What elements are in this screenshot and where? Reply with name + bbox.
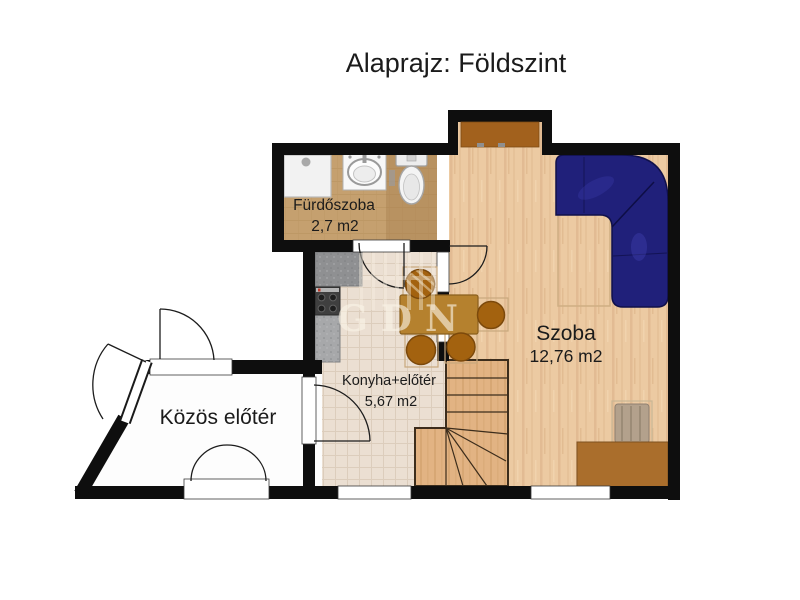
watermark-text: GDN <box>337 298 471 340</box>
living-area: 12,76 m2 <box>530 346 603 366</box>
desk <box>577 442 668 487</box>
kitchen-door-frame <box>302 377 316 444</box>
kitchen-name: Konyha+előtér <box>342 373 436 389</box>
shower-tray <box>284 155 331 197</box>
hall-top-door-swing <box>160 309 214 360</box>
desk-chair <box>612 401 652 445</box>
dining-chair <box>478 302 505 329</box>
living-name: Szoba <box>536 322 596 345</box>
bathroom-door-frame <box>353 240 410 252</box>
bathroom-name: Fürdőszoba <box>293 197 375 214</box>
shower-drain-icon <box>302 158 311 167</box>
double-door-frame <box>184 479 269 499</box>
floorplan-canvas: GDN Alaprajz: Földszint Fürdőszoba 2,7 m… <box>0 0 800 600</box>
bathroom-sink <box>343 153 386 190</box>
bathroom-area: 2,7 m2 <box>311 218 358 235</box>
window-room <box>531 486 610 499</box>
entry-niche-door <box>461 122 539 147</box>
floorplan-page: GDN Alaprajz: Földszint Fürdőszoba 2,7 m… <box>0 0 800 600</box>
room-door-frame <box>437 252 449 292</box>
page-title: Alaprajz: Földszint <box>346 48 567 78</box>
common-hall-name: Közös előtér <box>160 406 277 429</box>
hall-top-door-frame <box>150 359 232 375</box>
kitchen-area: 5,67 m2 <box>365 394 417 410</box>
window-kitchen <box>338 486 411 499</box>
